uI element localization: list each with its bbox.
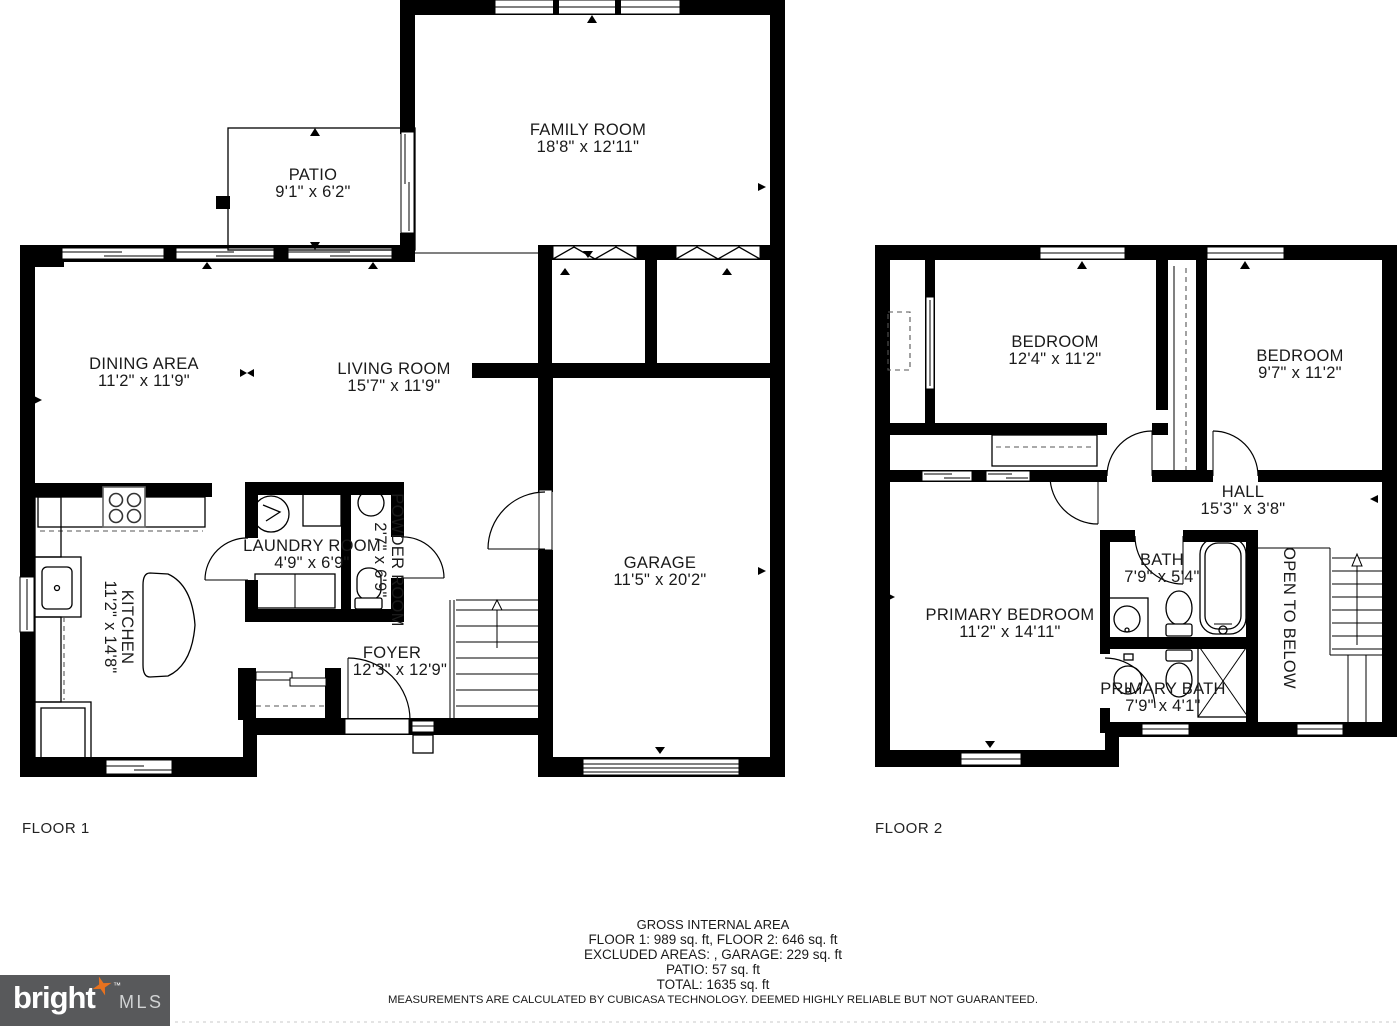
room-dims-living: 15'7" x 11'9" xyxy=(347,377,440,395)
room-label-primary-bedroom: PRIMARY BEDROOM xyxy=(926,606,1095,624)
summary-excluded: EXCLUDED AREAS: , GARAGE: 229 sq. ft xyxy=(584,947,842,962)
floor-plan-svg: FAMILY ROOM 18'8" x 12'11" PATIO 9'1" x … xyxy=(0,0,1400,1026)
summary-title: GROSS INTERNAL AREA xyxy=(637,917,790,932)
logo-brand-text: bright xyxy=(13,980,95,1016)
room-dims-powder: 2'7" x 6'9" xyxy=(371,522,389,597)
room-dims-patio: 9'1" x 6'2" xyxy=(275,183,350,201)
room-label-dining: DINING AREA xyxy=(89,355,199,373)
stairs-floor2 xyxy=(1258,548,1382,722)
sliding-door-icon xyxy=(401,132,414,233)
room-label-foyer: FOYER xyxy=(363,644,421,662)
room-label-hall: HALL xyxy=(1222,483,1264,501)
room-label-primary-bath: PRIMARY BATH xyxy=(1100,680,1226,698)
room-dims-bedroom2: 9'7" x 11'2" xyxy=(1258,364,1342,382)
room-dims-bedroom1: 12'4" x 11'2" xyxy=(1008,350,1101,368)
bedroom1-door-arc xyxy=(1107,431,1152,476)
washer-icon xyxy=(253,496,289,532)
floor2-plan: BEDROOM 12'4" x 11'2" BEDROOM 9'7" x 11'… xyxy=(875,245,1397,767)
room-label-laundry: LAUNDRY ROOM xyxy=(243,537,381,555)
room-label-garage: GARAGE xyxy=(624,554,696,572)
room-label-powder: POWDER ROOM xyxy=(388,493,406,626)
room-dims-dining: 11'2" x 11'9" xyxy=(98,372,190,390)
footer: FLOOR 1 FLOOR 2 GROSS INTERNAL AREA FLOO… xyxy=(22,820,1400,1022)
closet-slider-icon xyxy=(986,471,1030,481)
window-icon xyxy=(62,248,164,259)
up-arrow-icon xyxy=(1352,554,1362,645)
room-dims-bath: 7'9" x 5'4" xyxy=(1124,568,1199,586)
laundry-door-arc xyxy=(205,538,248,580)
bathtub-icon xyxy=(1200,538,1246,634)
sink-icon xyxy=(42,567,72,609)
primary-bedroom-door-arc xyxy=(1050,476,1098,524)
summary-patio: PATIO: 57 sq. ft xyxy=(666,962,760,977)
room-label-bath: BATH xyxy=(1140,551,1184,569)
room-dims-family-room: 18'8" x 12'11" xyxy=(537,138,640,156)
stove-icon xyxy=(103,487,145,527)
bedroom2-door-arc xyxy=(1213,431,1258,476)
bright-mls-logo: bright ™ MLS xyxy=(0,975,170,1026)
summary-total: TOTAL: 1635 sq. ft xyxy=(657,977,770,992)
floor2-labels: BEDROOM 12'4" x 11'2" BEDROOM 9'7" x 11'… xyxy=(926,333,1344,715)
closet-sliding-doors xyxy=(256,672,433,753)
floor1-plan: FAMILY ROOM 18'8" x 12'11" PATIO 9'1" x … xyxy=(20,0,785,777)
summary-disclaimer: MEASUREMENTS ARE CALCULATED BY CUBICASA … xyxy=(388,994,1038,1006)
window-icon xyxy=(106,760,172,774)
garage-door-icon xyxy=(583,759,739,775)
room-dims-foyer: 12'3" x 12'9" xyxy=(353,661,447,679)
floor1-label: FLOOR 1 xyxy=(22,820,90,837)
room-label-family-room: FAMILY ROOM xyxy=(530,121,646,139)
up-arrow-icon xyxy=(492,600,502,648)
summary-floors: FLOOR 1: 989 sq. ft, FLOOR 2: 646 sq. ft xyxy=(588,932,837,947)
kitchen-island xyxy=(143,573,195,677)
powder-door-arc xyxy=(401,537,444,578)
room-label-kitchen: KITCHEN xyxy=(118,590,136,665)
bath-sink-icon xyxy=(1108,598,1148,642)
room-dims-laundry: 4'9" x 6'9" xyxy=(274,554,349,572)
room-dims-kitchen: 11'2" x 14'8" xyxy=(101,580,119,673)
room-dims-primary-bedroom: 11'2" x 14'11" xyxy=(959,623,1060,641)
star-icon xyxy=(88,972,116,1000)
room-dims-primary-bath: 7'9" x 4'1" xyxy=(1125,697,1200,715)
toilet-icon xyxy=(1166,591,1192,636)
logo-trademark: ™ xyxy=(113,981,121,990)
room-label-bedroom1: BEDROOM xyxy=(1011,333,1098,351)
room-label-patio: PATIO xyxy=(289,166,338,184)
room-dims-garage: 11'5" x 20'2" xyxy=(613,571,706,589)
closet-slider-icon xyxy=(922,471,972,481)
logo-mls-text: MLS xyxy=(119,992,164,1013)
room-label-living: LIVING ROOM xyxy=(337,360,450,378)
room-label-bedroom2: BEDROOM xyxy=(1256,347,1343,365)
room-label-open-to-below: OPEN TO BELOW xyxy=(1280,547,1298,689)
garage-door-arc xyxy=(488,490,552,550)
floor2-markers xyxy=(887,261,1378,748)
room-dims-hall: 15'3" x 3'8" xyxy=(1201,500,1286,518)
stairs-floor1 xyxy=(450,600,538,718)
floor-plan-page: FAMILY ROOM 18'8" x 12'11" PATIO 9'1" x … xyxy=(0,0,1400,1026)
floor2-label: FLOOR 2 xyxy=(875,820,943,837)
